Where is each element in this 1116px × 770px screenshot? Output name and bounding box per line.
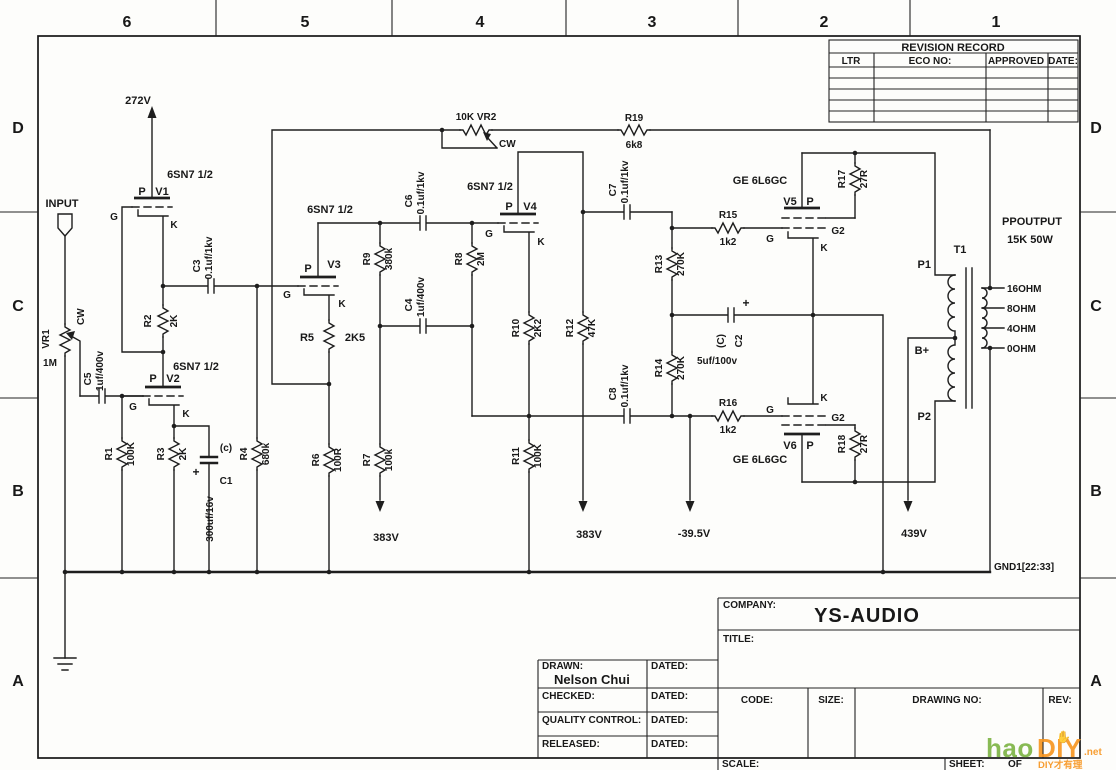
ruler-col-3: 3 [648, 14, 657, 31]
c3-value: 0.1uf/1kv [204, 236, 215, 279]
arrow-down-icon [686, 501, 695, 512]
v6-type: GE 6L6GC [733, 454, 787, 466]
c6-ref: C6 [404, 194, 415, 207]
v4-type: 6SN7 1/2 [467, 181, 513, 193]
ruler-col-5: 5 [301, 14, 310, 31]
vr2-ref: 10K VR2 [456, 112, 497, 123]
resistor-r17: R17 27R [837, 153, 870, 218]
tube-v4: 6SN7 1/2 P V4 G K [467, 152, 583, 312]
r7-value: 100k [384, 448, 395, 471]
drawn-label: DRAWN: [542, 661, 583, 672]
r14-value: 270K [676, 355, 687, 380]
watermark-net: .net [1084, 747, 1102, 758]
watermark-hand-icon: ✋ [1056, 730, 1071, 744]
revision-col-eco: ECO NO: [909, 56, 952, 67]
v6-cathode-label: K [820, 393, 828, 404]
tube-v2: 6SN7 1/2 P V2 G K [122, 361, 219, 426]
ruler-col-2: 2 [820, 14, 829, 31]
company-name: YS-AUDIO [814, 605, 920, 627]
r16-ref: R16 [719, 398, 738, 409]
junction-dots [63, 128, 993, 575]
r11-value: 100K [533, 443, 544, 468]
output-transformer-t1: 439V T1 P1 B+ P2 PPOUTPUT 15K 50W 16OHM … [802, 153, 1062, 572]
dated-label-2: DATED: [651, 691, 688, 702]
revision-col-ltr: LTR [842, 56, 861, 67]
r13-value: 270K [676, 251, 687, 276]
v5-cathode-label: K [820, 243, 828, 254]
v5-grid-label: G [766, 234, 774, 245]
vr1-value: 1M [43, 358, 57, 369]
resistor-r5: R5 2K5 [300, 320, 365, 384]
vr1-cw-label: CW [76, 308, 87, 325]
sheet-label: SHEET: [949, 759, 985, 770]
c1-ref: C1 [220, 476, 233, 487]
c4-ref: C4 [404, 298, 415, 311]
supply-383v-label-a: 383V [373, 532, 399, 544]
ruler-row-b-left: B [12, 483, 24, 500]
resistor-r18: R18 27R [837, 425, 870, 482]
v1-plate-label: P [138, 186, 145, 198]
resistor-r3: R3 2K [156, 426, 189, 572]
r12-ref: R12 [565, 318, 576, 337]
checked-label: CHECKED: [542, 691, 595, 702]
v6-name: V6 [783, 440, 796, 452]
t1-tap-4ohm: 4OHM [1007, 324, 1036, 335]
r10-value: 2K2 [533, 318, 544, 337]
r6-value: 100R [333, 447, 344, 472]
r8-value: 2M [476, 252, 487, 266]
company-label: COMPANY: [723, 600, 776, 611]
c5-ref: C5 [83, 372, 94, 385]
v5-name: V5 [783, 196, 796, 208]
r4-value: 680k [261, 442, 272, 465]
ruler-row-a-right: A [1090, 673, 1102, 690]
revision-col-date: DATE: [1048, 56, 1078, 67]
r3-value: 2K [178, 447, 189, 461]
resistor-r10: R10 2K2 [511, 312, 544, 416]
r19-value: 6k8 [626, 140, 643, 151]
resistor-r6: R6 100R [311, 384, 344, 572]
c2-note: (C) [716, 334, 727, 348]
r2-value: 2K [169, 314, 180, 328]
gnd-net-label: GND1[22:33] [994, 562, 1054, 573]
revision-record-table: REVISION RECORD LTR ECO NO: APPROVED DAT… [829, 40, 1078, 122]
watermark-hao: hao [986, 733, 1034, 763]
resistor-r15 [712, 223, 744, 233]
ruler-row-c-left: C [12, 298, 24, 315]
v4-grid-label: G [485, 229, 493, 240]
v6-screen-label: G2 [831, 413, 845, 424]
v2-type: 6SN7 1/2 [173, 361, 219, 373]
v3-name: V3 [327, 259, 340, 271]
v4-plate-label: P [505, 201, 512, 213]
r6-ref: R6 [311, 453, 322, 466]
r17-ref: R17 [837, 169, 848, 188]
resistor-r11: R11 100K [511, 416, 544, 572]
r1-ref: R1 [104, 447, 115, 460]
r18-value: 27R [859, 434, 870, 453]
bias-voltage-label: -39.5V [678, 528, 711, 540]
drawn-name: Nelson Chui [554, 672, 630, 687]
ground-bus: GND1[22:33] [65, 562, 1054, 573]
c4-value: 1uf/400v [416, 277, 427, 317]
capacitor-c3: C3 0.1uf/1kv [163, 236, 298, 293]
t1-ref: T1 [954, 244, 967, 256]
input-jack-icon [58, 214, 72, 236]
v5-screen-label: G2 [831, 226, 845, 237]
ruler-row-d-right: D [1090, 120, 1102, 137]
resistor-r4: R4 680k [239, 286, 272, 572]
c7-value: 0.1uf/1kv [620, 160, 631, 203]
r19-ref: R19 [625, 113, 644, 124]
v1-type: 6SN7 1/2 [167, 169, 213, 181]
resistor-r19 [618, 125, 650, 135]
r11-ref: R11 [511, 447, 522, 465]
size-label: SIZE: [818, 695, 844, 706]
c1-note: (c) [220, 443, 232, 454]
interstage-network: C6 0.1uf/1kv R9 380k R8 2M C4 1uf/400v R… [318, 171, 498, 544]
rev-label: REV: [1048, 695, 1071, 706]
t1-bplus-label: B+ [915, 345, 929, 357]
supply-439v-label: 439V [901, 528, 927, 540]
t1-tap-16ohm: 16OHM [1007, 284, 1041, 295]
v4-name: V4 [523, 201, 537, 213]
code-label: CODE: [741, 695, 773, 706]
dated-label-4: DATED: [651, 739, 688, 750]
ruler-row-b-right: B [1090, 483, 1102, 500]
arrow-down-icon [376, 501, 385, 512]
schematic-canvas: 6 5 4 3 2 1 D C B A D C B A REVISION REC… [0, 0, 1116, 770]
c1-plus: + [192, 465, 199, 479]
t1-p1-label: P1 [918, 259, 931, 271]
c6-value: 0.1uf/1kv [416, 171, 427, 214]
t1-p2-label: P2 [918, 411, 931, 423]
r2-ref: R2 [143, 314, 154, 327]
resistor-r1: R1 100K [104, 396, 137, 572]
r1-value: 100K [126, 441, 137, 466]
r5-value: 2K5 [345, 332, 365, 344]
c2-ref: C2 [734, 334, 745, 347]
coupler-bias-network: C7 0.1uf/1kv R13 270K R14 270K R15 1k2 C… [472, 160, 782, 540]
c1-value: 300uf/16v [205, 496, 216, 542]
r7-ref: R7 [362, 453, 373, 466]
revision-title: REVISION RECORD [901, 42, 1004, 54]
tube-v6: GE 6L6GC V6 P G G2 K [733, 315, 855, 482]
tube-v3: 6SN7 1/2 P V3 G K [283, 204, 353, 320]
ground-icon [54, 658, 76, 670]
schematic-sheet: 6 5 4 3 2 1 D C B A D C B A REVISION REC… [0, 0, 1116, 770]
r14-ref: R14 [654, 358, 665, 377]
c8-ref: C8 [608, 387, 619, 400]
input-stage-vr1: INPUT CW VR1 1M [41, 198, 87, 670]
v3-plate-label: P [304, 263, 311, 275]
dated-label-3: DATED: [651, 715, 688, 726]
t1-name: PPOUTPUT [1002, 216, 1062, 228]
v5-plate-label: P [806, 196, 813, 208]
r16-value: 1k2 [720, 425, 737, 436]
t1-tap-0ohm: 0OHM [1007, 344, 1036, 355]
arrow-down-icon [904, 501, 913, 512]
ruler-row-c-right: C [1090, 298, 1102, 315]
c2-plus: + [742, 296, 749, 310]
c8-value: 0.1uf/1kv [620, 364, 631, 407]
r17-value: 27R [859, 169, 870, 188]
tube-v1: 272V 6SN7 1/2 P V1 G K [110, 95, 213, 352]
c5-value: 1uf/400v [95, 351, 106, 391]
t1-tap-8ohm: 8OHM [1007, 304, 1036, 315]
r10-ref: R10 [511, 318, 522, 337]
r5-ref: R5 [300, 332, 314, 344]
v6-plate-label: P [806, 440, 813, 452]
r12-value: 47K [587, 318, 598, 337]
v2-cathode-label: K [182, 409, 190, 420]
ruler-row-d-left: D [12, 120, 24, 137]
watermark: hao DIY ✋ .net DIY才有理 [986, 730, 1102, 770]
v4-cathode-label: K [537, 237, 545, 248]
r15-value: 1k2 [720, 237, 737, 248]
resistor-r12: R12 47K 383V [565, 212, 603, 541]
released-label: RELEASED: [542, 739, 600, 750]
ruler-col-1: 1 [992, 14, 1001, 31]
potentiometer-vr1 [60, 324, 70, 356]
v2-name: V2 [166, 373, 179, 385]
t1-rating: 15K 50W [1007, 234, 1053, 246]
c7-ref: C7 [608, 183, 619, 196]
title-label: TITLE: [723, 634, 754, 645]
v1-grid-label: G [110, 212, 118, 223]
v2-grid-label: G [129, 402, 137, 413]
v1-name: V1 [155, 186, 168, 198]
c3-ref: C3 [192, 259, 203, 272]
ruler-row-a-left: A [12, 673, 24, 690]
ruler-col-4: 4 [476, 14, 485, 31]
r3-ref: R3 [156, 447, 167, 460]
r13-ref: R13 [654, 254, 665, 273]
supply-272v-label: 272V [125, 95, 151, 107]
r9-value: 380k [384, 247, 395, 270]
dated-label-1: DATED: [651, 661, 688, 672]
r9-ref: R9 [362, 252, 373, 265]
revision-col-approved: APPROVED [988, 56, 1044, 67]
v2-plate-label: P [149, 373, 156, 385]
resistor-r16 [712, 411, 744, 421]
c2-value: 5uf/100v [697, 356, 737, 367]
v3-grid-label: G [283, 290, 291, 301]
qc-label: QUALITY CONTROL: [542, 715, 641, 726]
v3-type: 6SN7 1/2 [307, 204, 353, 216]
v5-type: GE 6L6GC [733, 175, 787, 187]
ruler-col-6: 6 [123, 14, 132, 31]
vr2-cw-label: CW [499, 139, 516, 150]
r15-ref: R15 [719, 210, 738, 221]
r4-ref: R4 [239, 447, 250, 460]
r18-ref: R18 [837, 434, 848, 453]
v1-cathode-label: K [170, 220, 178, 231]
supply-383v-label-b: 383V [576, 529, 602, 541]
input-label: INPUT [46, 198, 79, 210]
scale-label: SCALE: [722, 759, 759, 770]
v6-grid-label: G [766, 405, 774, 416]
r8-ref: R8 [454, 252, 465, 265]
watermark-tagline: DIY才有理 [1038, 759, 1083, 770]
arrow-down-icon [579, 501, 588, 512]
capacitor-c5: C5 1uf/400v [80, 351, 143, 403]
vr1-ref: VR1 [41, 329, 52, 349]
drawing-no-label: DRAWING NO: [912, 695, 981, 706]
v3-cathode-label: K [338, 299, 346, 310]
